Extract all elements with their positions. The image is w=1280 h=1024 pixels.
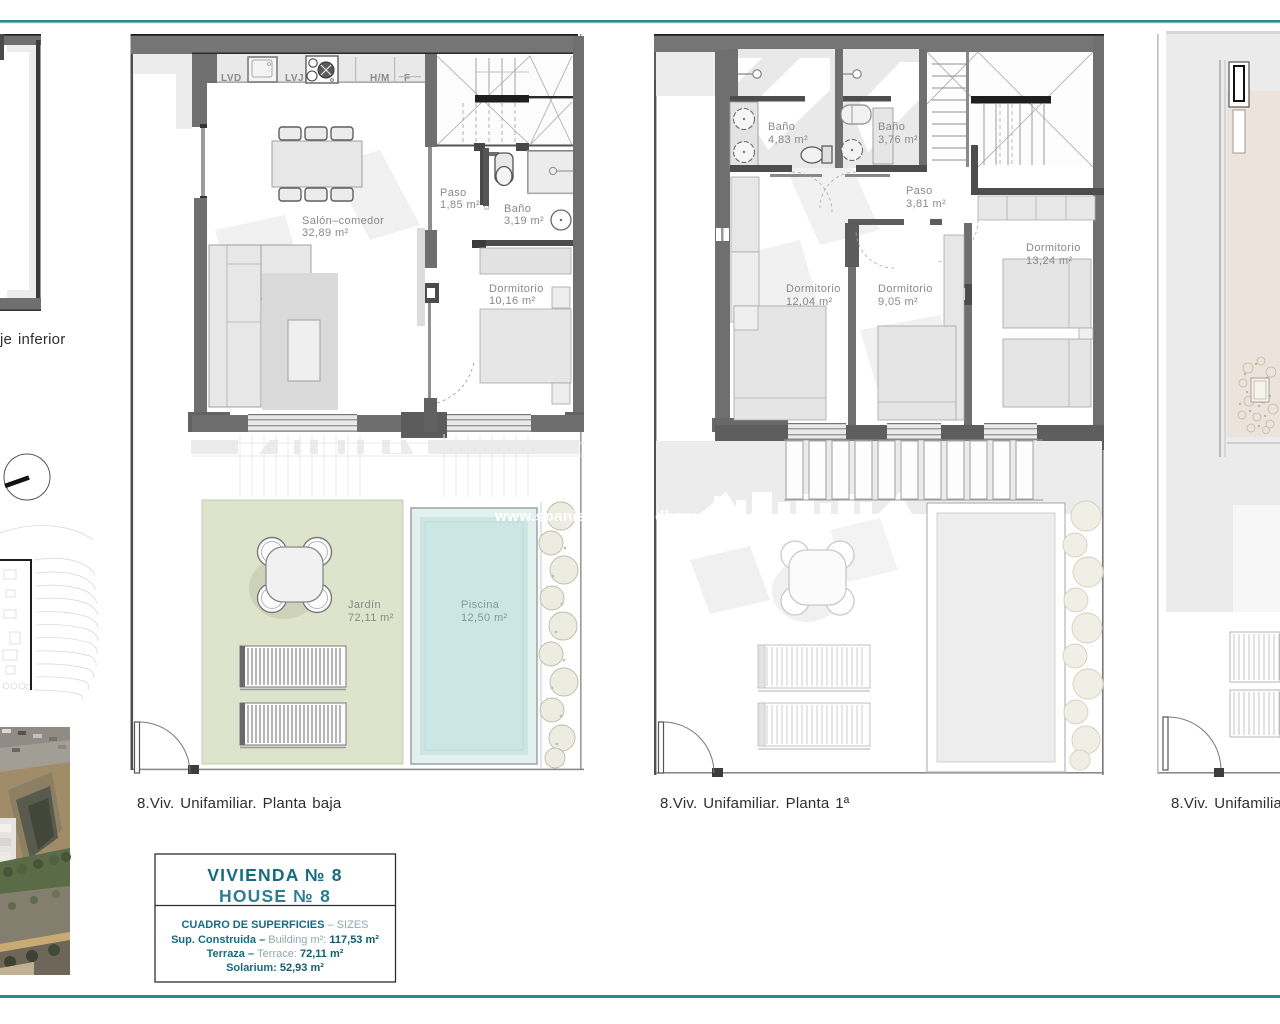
svg-text:H/M: H/M xyxy=(370,73,390,84)
svg-text:1,85 m² ▯: 1,85 m² ▯ xyxy=(440,199,490,211)
svg-text:Baño: Baño xyxy=(768,121,795,133)
svg-text:Dormitorio: Dormitorio xyxy=(878,283,933,295)
svg-text:Paso: Paso xyxy=(906,185,933,197)
svg-text:Baño: Baño xyxy=(878,121,905,133)
svg-text:10,16 m²: 10,16 m² xyxy=(489,295,536,307)
svg-text:8.Viv. Unifamiliar. Planta baj: 8.Viv. Unifamiliar. Planta baja xyxy=(137,795,342,812)
svg-text:12,50 m²: 12,50 m² xyxy=(461,612,508,624)
svg-text:Dormitorio: Dormitorio xyxy=(489,283,544,295)
svg-text:4,83 m²: 4,83 m² xyxy=(768,134,808,146)
svg-text:Salón–comedor: Salón–comedor xyxy=(302,215,384,227)
svg-text:8.Viv. Unifamiliar. Planta 1ª: 8.Viv. Unifamiliar. Planta 1ª xyxy=(660,795,850,812)
svg-text:3,19 m²: 3,19 m² xyxy=(504,215,544,227)
svg-text:8.Viv. Unifamiliar: 8.Viv. Unifamiliar xyxy=(1171,795,1280,812)
svg-text:Baño: Baño xyxy=(504,203,531,215)
svg-text:Dormitorio: Dormitorio xyxy=(786,283,841,295)
svg-text:13,24 m²: 13,24 m² xyxy=(1026,255,1073,267)
svg-text:HOUSE № 8: HOUSE № 8 xyxy=(219,886,331,906)
svg-text:Dormitorio: Dormitorio xyxy=(1026,242,1081,254)
svg-text:Sup. Construida – Building m²:: Sup. Construida – Building m²: 117,53 m² xyxy=(171,934,379,946)
svg-text:F: F xyxy=(404,73,411,84)
svg-text:je inferior: je inferior xyxy=(0,331,65,348)
svg-text:Solarium: 52,93 m²: Solarium: 52,93 m² xyxy=(226,962,324,974)
svg-text:32,89 m²: 32,89 m² xyxy=(302,227,349,239)
svg-text:LVJ: LVJ xyxy=(285,73,304,84)
svg-text:12,04 m²: 12,04 m² xyxy=(786,296,833,308)
svg-text:LVD: LVD xyxy=(221,73,242,84)
svg-text:Paso: Paso xyxy=(440,187,467,199)
svg-text:72,11 m²: 72,11 m² xyxy=(348,612,394,624)
svg-text:VIVIENDA № 8: VIVIENDA № 8 xyxy=(207,865,342,885)
svg-text:3,81 m²: 3,81 m² xyxy=(906,198,946,210)
svg-text:Piscina: Piscina xyxy=(461,599,500,611)
svg-text:Terraza – Terrace: 72,11 m²: Terraza – Terrace: 72,11 m² xyxy=(207,948,344,960)
svg-text:Jardín: Jardín xyxy=(348,599,381,611)
svg-text:CUADRO DE SUPERFICIES – SIZES: CUADRO DE SUPERFICIES – SIZES xyxy=(181,919,368,931)
svg-text:9,05 m²: 9,05 m² xyxy=(878,296,918,308)
